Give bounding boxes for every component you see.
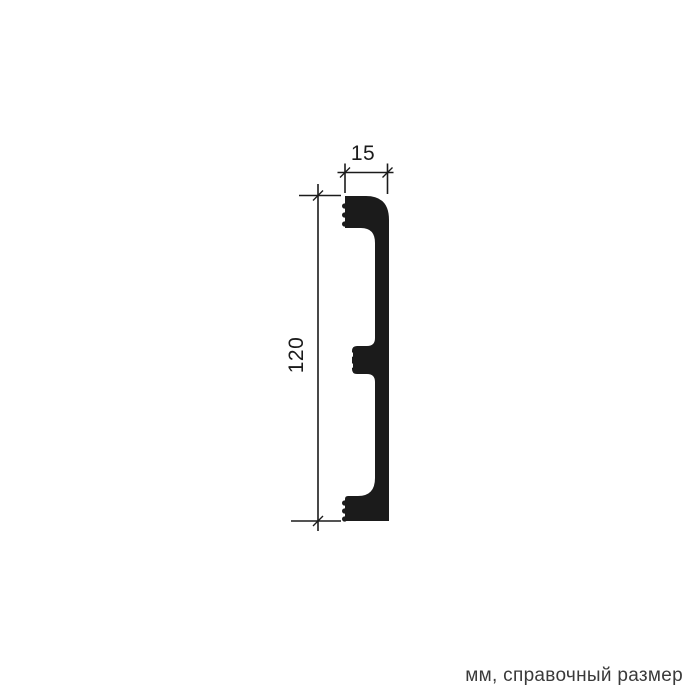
tab-notch: [350, 353, 353, 357]
foot-rib-bump: [342, 500, 347, 505]
height-dimension-label: 120: [271, 325, 321, 385]
width-dimension: [338, 164, 394, 195]
width-dimension-label: 15: [338, 143, 388, 164]
units-caption: мм, справочный размер: [465, 665, 683, 687]
tab-notch: [350, 364, 353, 368]
profile-drawing-svg: [0, 0, 693, 698]
head-rib-bump: [342, 212, 347, 217]
foot-rib-bump: [342, 516, 347, 521]
profile-outline: [345, 196, 389, 521]
foot-rib-bump: [342, 508, 347, 513]
head-rib-bump: [342, 221, 347, 226]
head-rib-bump: [342, 203, 347, 208]
drawing-page: 15 120 мм, справочный размер: [0, 0, 693, 698]
profile-shape: [342, 196, 389, 522]
